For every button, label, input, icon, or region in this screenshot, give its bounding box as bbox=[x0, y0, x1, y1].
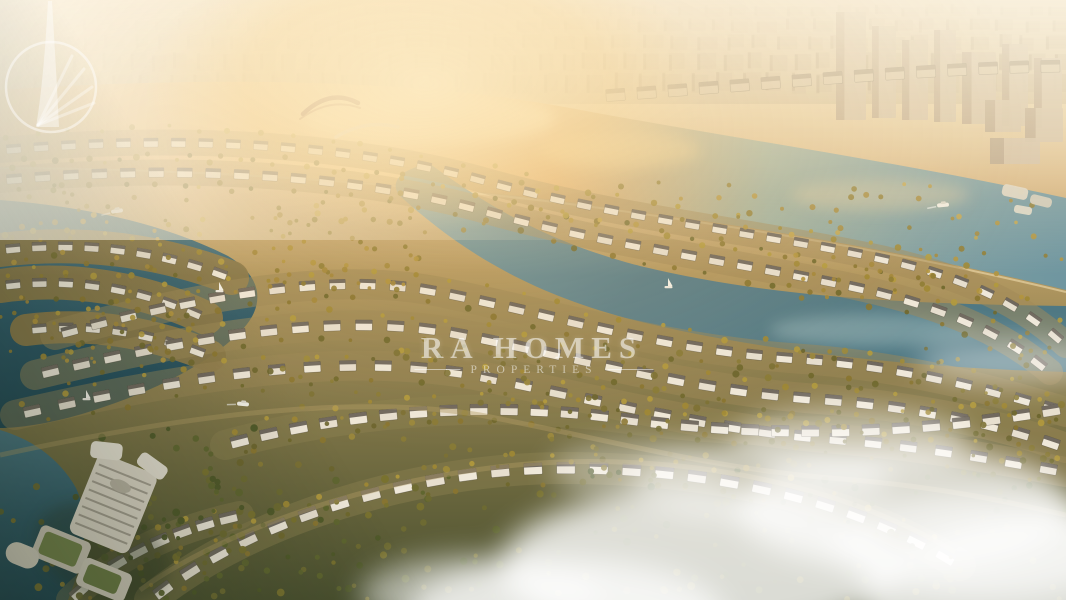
aerial-render-image: RA HOMES PROPERTIES bbox=[0, 0, 1066, 600]
scene-canvas bbox=[0, 0, 1066, 600]
